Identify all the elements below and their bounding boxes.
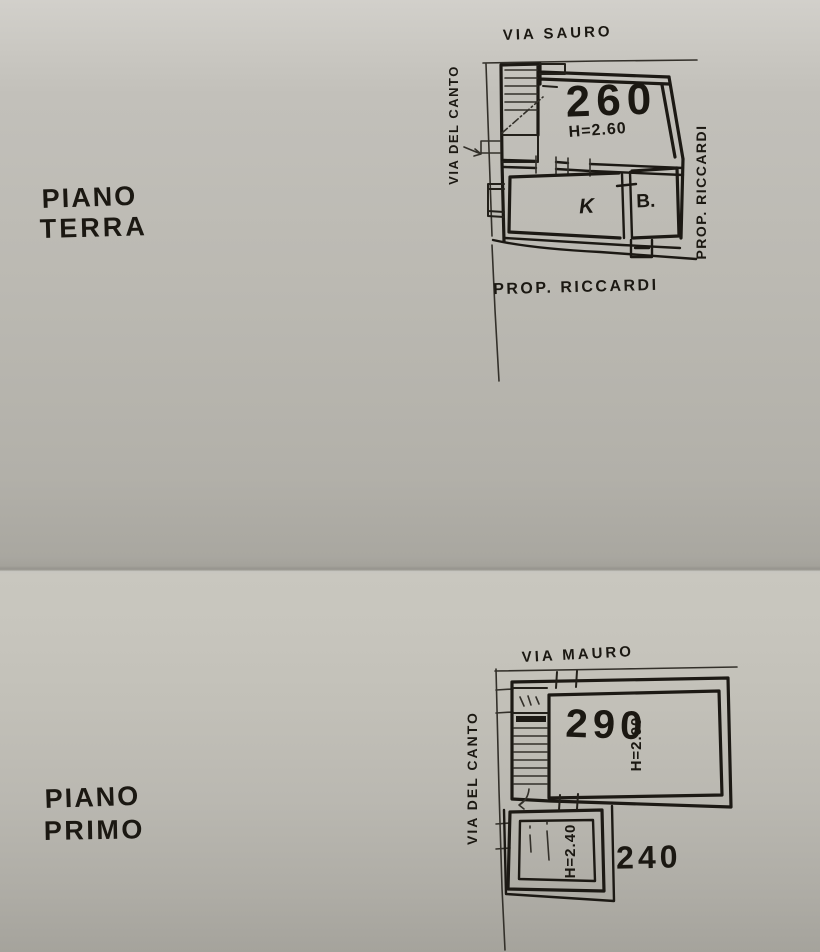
stairs-primo <box>513 688 548 809</box>
floorplan-drawing: PIANO TERRA VIA SAURO VIA DEL CANTO <box>0 0 820 952</box>
floor-title-line1: PIANO <box>44 781 141 814</box>
street-top-label: VIA MAURO <box>521 643 634 666</box>
floor-title-line2: PRIMO <box>44 814 146 846</box>
room-240-height: H=2.40 <box>562 824 579 879</box>
scanned-floorplan-sheet: PIANO TERRA VIA SAURO VIA DEL CANTO <box>0 0 820 952</box>
street-top-line <box>483 60 697 63</box>
floor-title-line2: TERRA <box>39 211 148 244</box>
stairs-terra <box>481 70 557 162</box>
room-k-walls <box>509 173 620 238</box>
property-bottom-label: PROP. RICCARDI <box>493 277 659 298</box>
stair-door-tick <box>543 86 557 87</box>
stair-threshold <box>516 716 546 722</box>
room-k-label: K <box>578 195 596 219</box>
room-290-height: H=2.90 <box>628 717 645 772</box>
room-260-right-wall <box>662 77 683 159</box>
room-260-number: 260 <box>565 74 658 126</box>
piano-primo-plan: PIANO PRIMO VIA MAURO VIA DEL CANTO <box>44 643 737 950</box>
street-top-line <box>495 667 737 671</box>
street-side-arrow-icon <box>464 147 481 156</box>
street-side-label: VIA DEL CANTO <box>464 711 480 845</box>
property-right-label: PROP. RICCARDI <box>693 124 709 259</box>
stair-landing-box <box>502 135 538 162</box>
floor-title-line1: PIANO <box>41 181 138 214</box>
room-240-number: 240 <box>616 838 682 875</box>
stair-landing-box <box>513 688 548 713</box>
room-260-height: H=2.60 <box>568 120 627 141</box>
street-side-label: VIA DEL CANTO <box>446 65 461 185</box>
piano-terra-plan: PIANO TERRA VIA SAURO VIA DEL CANTO <box>39 23 709 381</box>
band-right-wall <box>681 159 683 238</box>
k-b-divider-wall <box>617 172 636 238</box>
entry-door-box <box>481 141 500 153</box>
annex-window-marks <box>530 822 549 860</box>
stair-block-walls <box>501 64 540 241</box>
stair-landing-scribble <box>520 696 539 706</box>
street-top-label: VIA SAURO <box>503 23 613 44</box>
property-left-line <box>492 245 499 381</box>
room-b-label: B. <box>636 191 656 213</box>
